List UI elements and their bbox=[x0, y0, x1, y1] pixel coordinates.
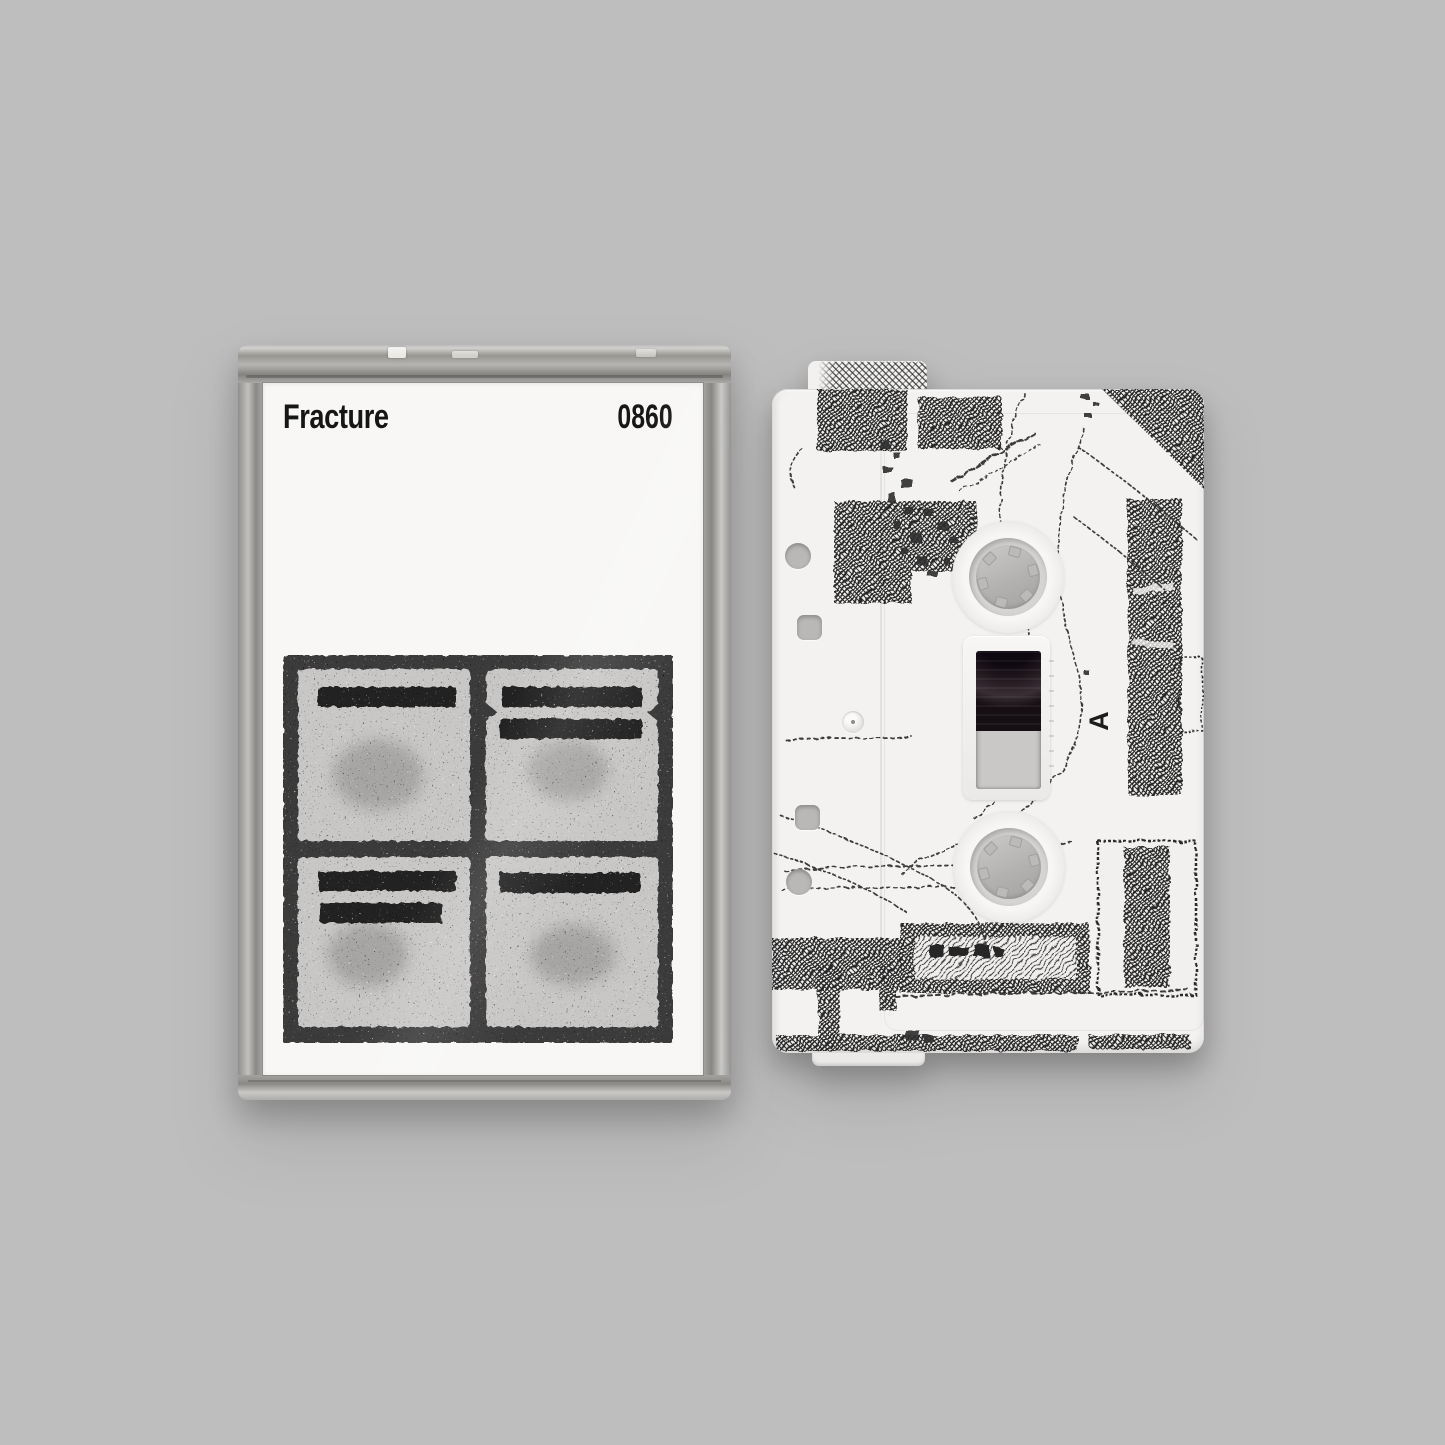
hole-round-upper bbox=[785, 543, 811, 569]
case-hinge-tab bbox=[388, 347, 406, 358]
hub-upper bbox=[952, 521, 1064, 633]
hub-tooth bbox=[977, 577, 990, 591]
hub-tooth bbox=[1028, 853, 1041, 867]
hole-square-upper bbox=[797, 615, 822, 640]
j-card-title-row: Fracture 0860 bbox=[283, 400, 673, 434]
hub-tooth bbox=[1020, 878, 1036, 894]
side-a-label: A bbox=[1084, 706, 1114, 736]
hub-tooth bbox=[995, 886, 1009, 899]
product-photo-stage: Fracture 0860 bbox=[0, 0, 1445, 1445]
tape-window bbox=[963, 636, 1050, 800]
hub-disc bbox=[977, 835, 1041, 899]
tape-reel-pack bbox=[976, 651, 1041, 731]
hub-tooth bbox=[1008, 546, 1022, 559]
hub-tooth bbox=[978, 867, 991, 881]
hub-disc bbox=[976, 545, 1040, 609]
case-frame-left bbox=[238, 345, 263, 1100]
art-noise-light bbox=[283, 655, 673, 1043]
hole-round-lower bbox=[786, 869, 812, 895]
tape-shell: A bbox=[772, 389, 1204, 1053]
artist-title: Fracture bbox=[283, 400, 389, 434]
j-card: Fracture 0860 bbox=[263, 383, 703, 1075]
artwork-xerox-svg bbox=[283, 655, 673, 1043]
case-frame-bottom bbox=[238, 1075, 731, 1100]
case-frame-top bbox=[238, 345, 731, 383]
artwork-grid bbox=[283, 655, 673, 1043]
case-frame-right bbox=[703, 345, 731, 1100]
hub-tooth bbox=[1027, 563, 1040, 577]
shell-seam bbox=[880, 417, 882, 1027]
window-opening bbox=[976, 651, 1041, 789]
hub-lower bbox=[953, 811, 1065, 923]
case-hinge-tab bbox=[452, 351, 478, 358]
hub-tooth bbox=[1019, 588, 1035, 604]
hub-tooth bbox=[994, 596, 1008, 609]
case-hinge-tab bbox=[636, 349, 656, 357]
hub-tooth bbox=[983, 841, 999, 857]
cassette-case: Fracture 0860 bbox=[238, 345, 731, 1100]
catalog-number: 0860 bbox=[618, 400, 673, 434]
window-ticks bbox=[1049, 660, 1054, 772]
case-shell: Fracture 0860 bbox=[238, 345, 731, 1100]
hub-tooth bbox=[1009, 836, 1023, 849]
hub-recess bbox=[970, 828, 1048, 906]
cassette-tape: A bbox=[772, 389, 1204, 1053]
hub-tooth bbox=[982, 551, 998, 567]
hub-recess bbox=[969, 538, 1047, 616]
hole-square-lower bbox=[795, 805, 820, 830]
screw-recess bbox=[842, 711, 864, 733]
